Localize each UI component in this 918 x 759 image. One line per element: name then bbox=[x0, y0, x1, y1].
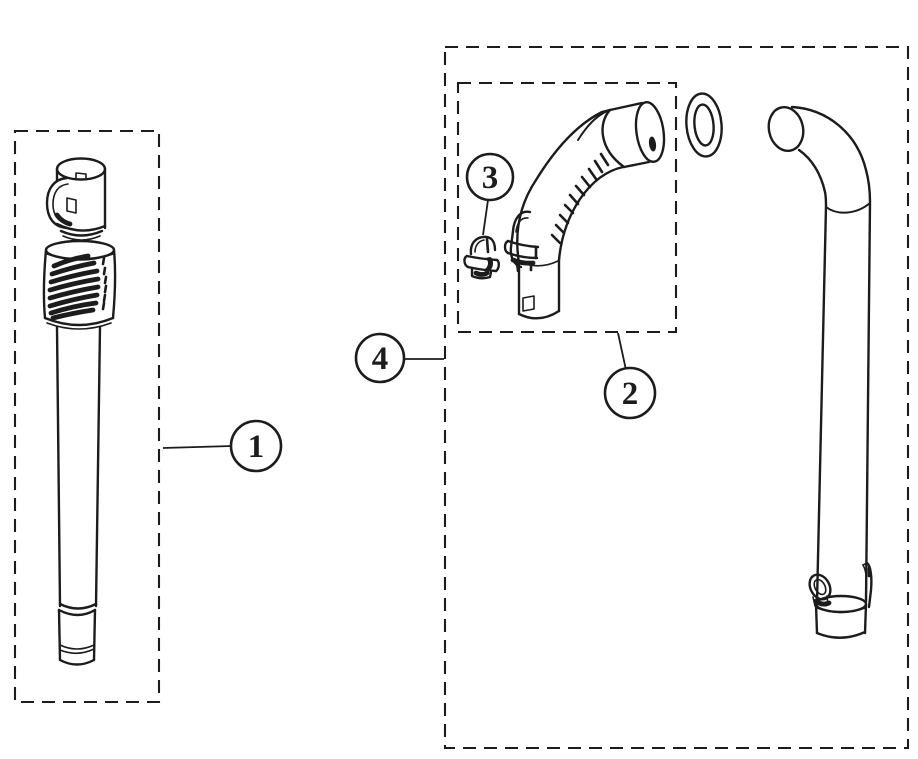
wand-top-opening bbox=[57, 159, 105, 180]
wand-tube-left-edge bbox=[57, 327, 60, 606]
callout-4-badge: 4 bbox=[356, 334, 404, 382]
callout-1-number: 1 bbox=[248, 429, 265, 465]
handle-latch-button bbox=[505, 212, 538, 271]
callout-4-number: 4 bbox=[372, 341, 389, 377]
handle-drawing bbox=[505, 100, 668, 318]
handle-inner-curve bbox=[559, 167, 623, 260]
callout-3-number: 3 bbox=[482, 160, 499, 196]
latch-clip-drawing bbox=[464, 237, 498, 278]
bent-tube-drawing bbox=[765, 104, 872, 638]
tube-opening bbox=[765, 104, 807, 154]
callout-3-leader bbox=[483, 200, 488, 235]
part-1-boundary-box bbox=[15, 131, 159, 702]
callout-1-badge: 1 bbox=[231, 421, 281, 471]
grip-texture-ticks bbox=[103, 258, 106, 309]
handle-cuff bbox=[603, 100, 668, 167]
tube-bend-seam bbox=[826, 203, 870, 213]
handle-outer-curve bbox=[517, 110, 610, 263]
wand-grip-barrel bbox=[44, 241, 115, 329]
tube-outer-edge bbox=[792, 107, 870, 602]
cuff-slot bbox=[648, 136, 657, 152]
oring-drawing bbox=[684, 92, 724, 158]
callout-3-badge: 3 bbox=[467, 154, 513, 200]
wand-latch-tab bbox=[47, 178, 76, 228]
parts-diagram-canvas: 1 2 3 4 bbox=[0, 0, 918, 759]
wand-tube-right-edge bbox=[96, 327, 100, 606]
callout-2-number: 2 bbox=[622, 376, 639, 412]
tube-inner-edge bbox=[799, 150, 826, 602]
parts-diagram: 1 2 3 4 bbox=[0, 0, 918, 759]
wand-bottom-cuff bbox=[59, 604, 96, 665]
callout-2-leader bbox=[618, 333, 626, 370]
handle-lower-cylinder bbox=[519, 260, 559, 318]
assembly-4-boundary-box bbox=[445, 47, 908, 748]
wand-drawing bbox=[44, 159, 115, 665]
callout-1-leader bbox=[163, 446, 232, 448]
callout-2-badge: 2 bbox=[605, 368, 655, 418]
grip-ridges bbox=[50, 256, 98, 318]
